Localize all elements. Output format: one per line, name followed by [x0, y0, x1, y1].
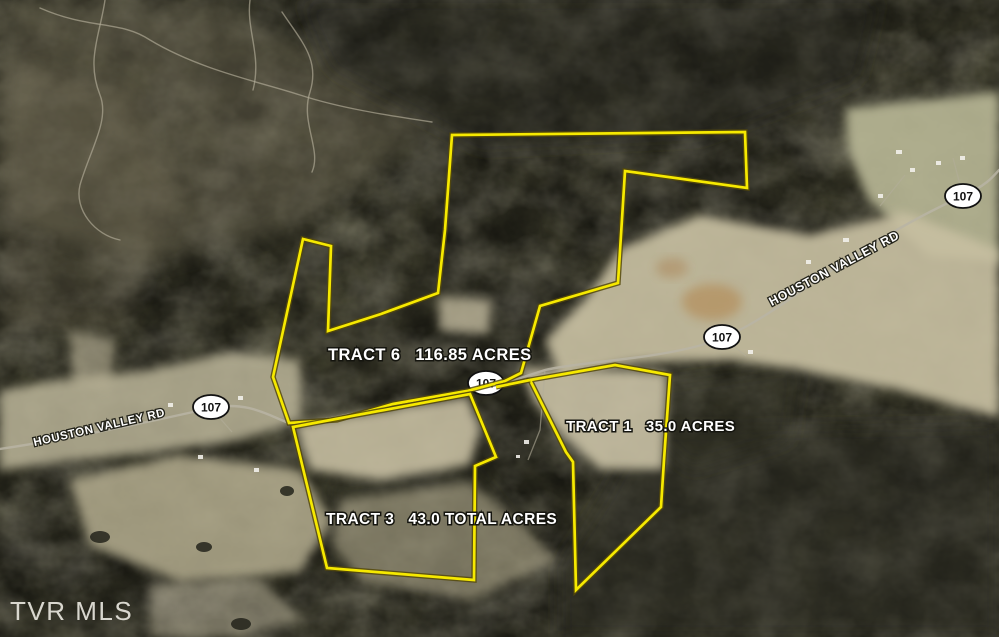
map-canvas: 107 107 107 107 TRACT 6 116.85 ACRES TRA…	[0, 0, 999, 637]
pond	[231, 618, 251, 630]
shield-route-number: 107	[712, 331, 732, 345]
aerial-property-map: 107 107 107 107 TRACT 6 116.85 ACRES TRA…	[0, 0, 999, 637]
house	[910, 168, 915, 172]
house	[168, 403, 173, 407]
house	[878, 194, 883, 198]
house	[936, 161, 941, 165]
dirt-patch	[682, 284, 742, 320]
pond	[196, 542, 212, 552]
dirt-patch-small	[656, 258, 688, 278]
route-shield-107-far-right: 107	[945, 184, 981, 208]
house	[198, 455, 203, 459]
house	[516, 455, 520, 458]
shield-route-number: 107	[201, 401, 221, 415]
pond	[280, 486, 294, 496]
route-shield-107-left: 107	[193, 395, 229, 419]
house	[960, 156, 965, 160]
tract-6-label: TRACT 6 116.85 ACRES	[328, 346, 532, 364]
house	[896, 150, 902, 154]
house	[843, 238, 849, 242]
house	[748, 350, 753, 354]
tract-3-label: TRACT 3 43.0 TOTAL ACRES	[326, 511, 557, 528]
mls-watermark: TVR MLS	[10, 596, 133, 626]
house	[524, 440, 529, 444]
house	[806, 260, 811, 264]
route-shield-107-mid-right: 107	[704, 325, 740, 349]
field-patch-center	[438, 296, 492, 335]
tract-1-label: TRACT 1 35.0 ACRES	[566, 418, 735, 435]
shield-route-number: 107	[953, 190, 973, 204]
house	[238, 396, 243, 400]
pond	[90, 531, 110, 543]
house	[254, 468, 259, 472]
field-patch-left	[68, 330, 116, 392]
